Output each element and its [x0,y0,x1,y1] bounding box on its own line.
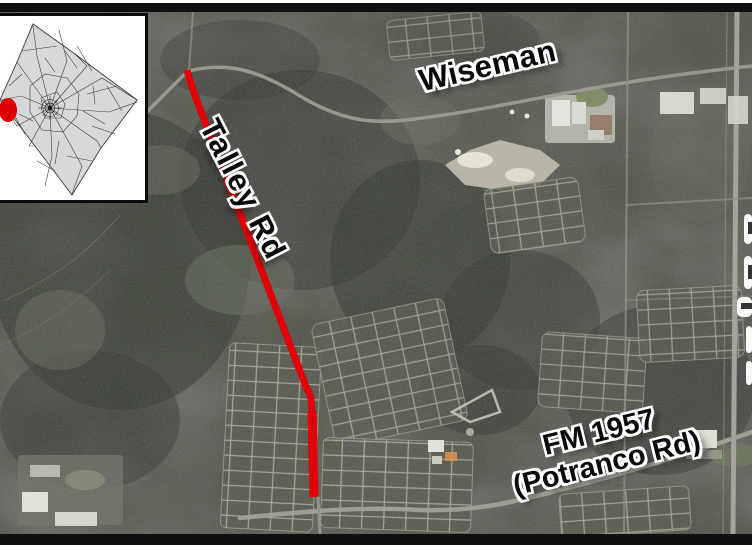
aerial-map: Wiseman Talley Rd FM 1957 (Potranco Rd) [0,12,752,534]
frame-top-border [0,3,752,12]
county-locator-inset [0,13,148,203]
county-map [0,16,145,200]
figure: Wiseman Talley Rd FM 1957 (Potranco Rd) [0,0,752,548]
frame-bottom-border [0,534,752,545]
